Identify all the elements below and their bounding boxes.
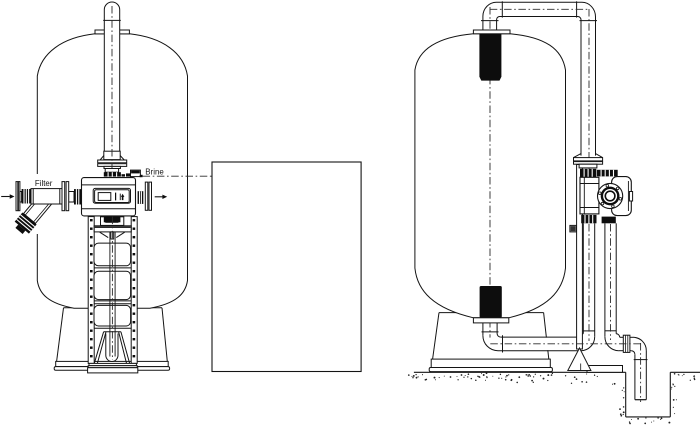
svg-text:Brine: Brine (145, 168, 164, 177)
svg-text:Filter: Filter (35, 179, 53, 188)
